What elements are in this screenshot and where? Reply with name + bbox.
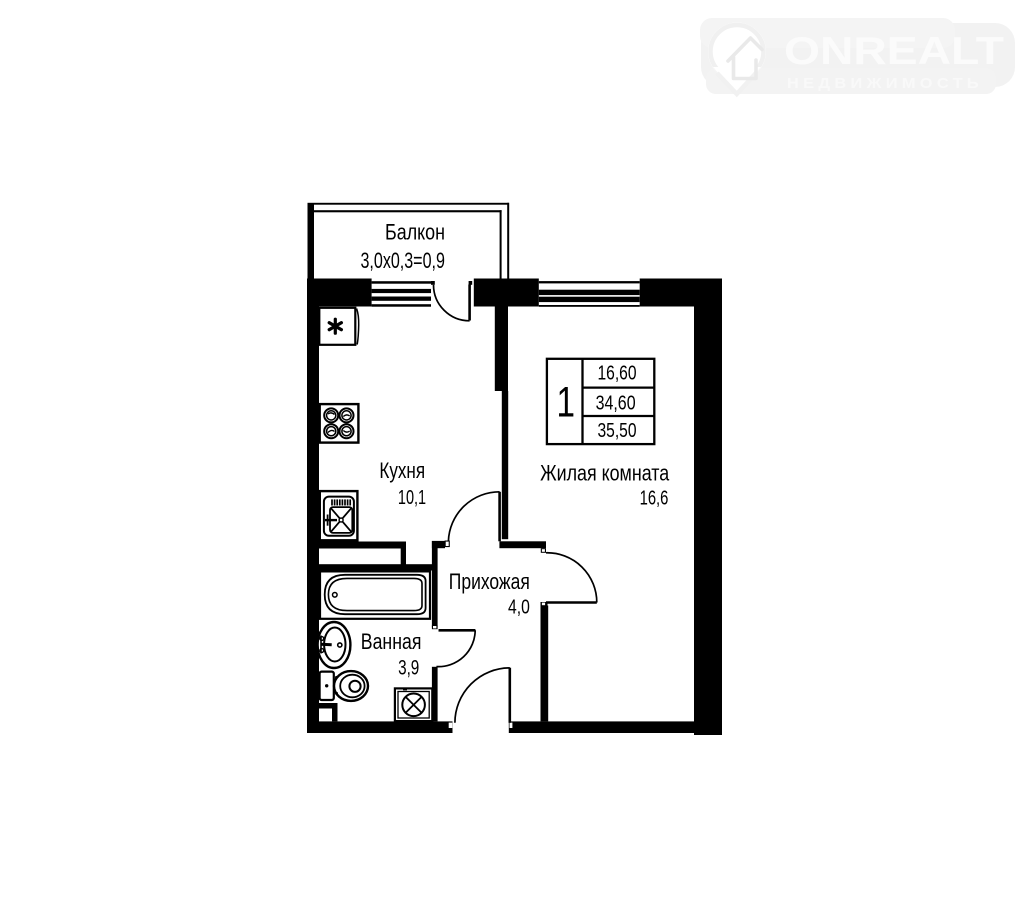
svg-text:16,6: 16,6 — [640, 487, 669, 509]
svg-text:НЕДВИЖИМОСТЬ: НЕДВИЖИМОСТЬ — [787, 75, 983, 92]
svg-text:Ванная: Ванная — [361, 629, 422, 654]
svg-text:Прихожая: Прихожая — [449, 569, 530, 594]
svg-text:Кухня: Кухня — [379, 458, 425, 483]
svg-text:35,50: 35,50 — [598, 419, 637, 442]
svg-text:10,1: 10,1 — [398, 487, 426, 509]
svg-text:Жилая комната: Жилая комната — [540, 460, 670, 485]
svg-text:4,0: 4,0 — [508, 597, 530, 619]
svg-text:ONREALT: ONREALT — [784, 30, 1004, 73]
svg-text:34,60: 34,60 — [596, 391, 636, 414]
svg-text:16,60: 16,60 — [598, 362, 637, 385]
svg-text:1: 1 — [557, 379, 576, 427]
svg-text:3,0х0,3=0,9: 3,0х0,3=0,9 — [361, 248, 445, 273]
svg-text:Балкон: Балкон — [385, 220, 445, 245]
svg-text:3,9: 3,9 — [398, 657, 419, 680]
